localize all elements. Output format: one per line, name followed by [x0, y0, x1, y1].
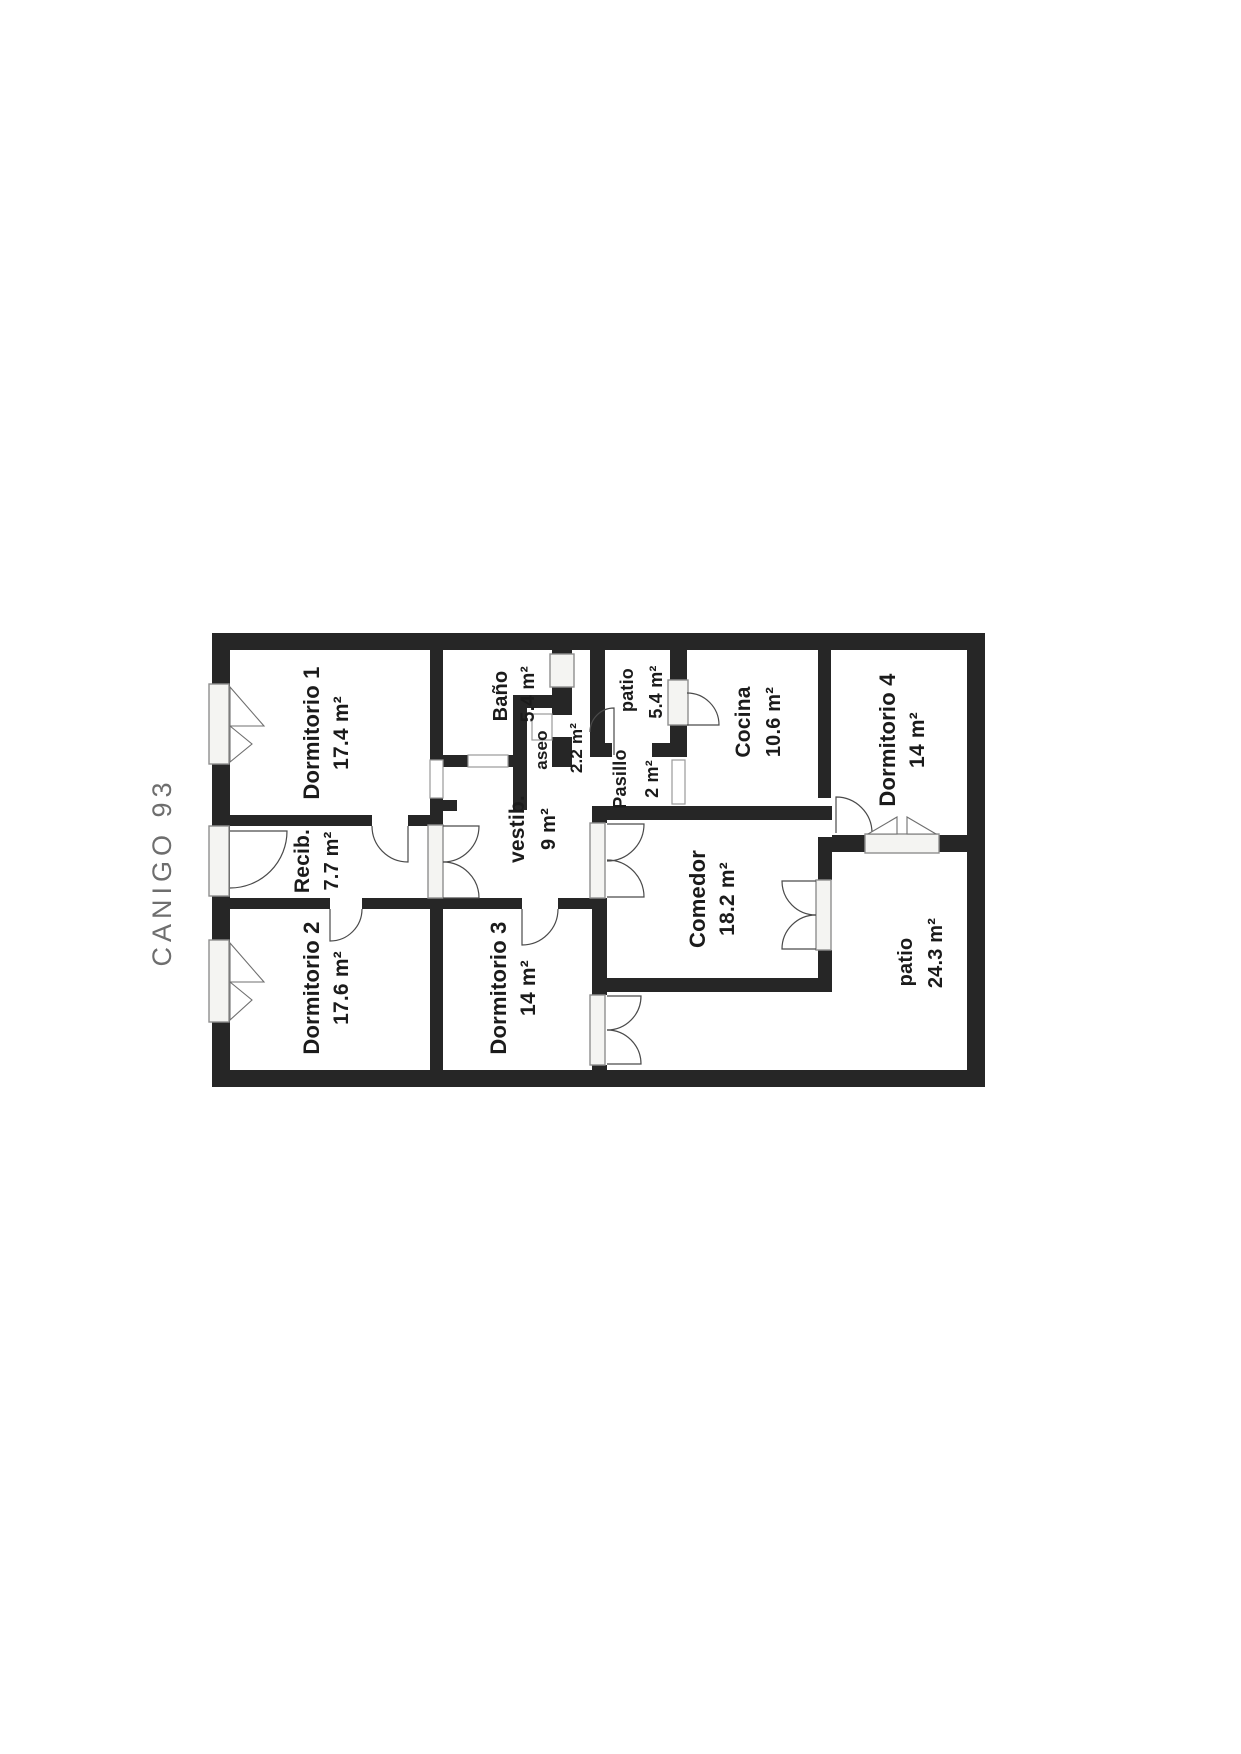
recib-vestib-door-swing-b: [443, 862, 479, 898]
entrance-door-swing: [230, 831, 287, 888]
cocina-door-swing: [687, 693, 719, 725]
vestib-comedor-door-fixture: [590, 823, 605, 898]
room-label-pasillo-area: 2 m²: [637, 659, 667, 899]
dorm1-window-swing-icon: [230, 726, 252, 762]
dorm3-patio-door-fixture: [590, 995, 605, 1065]
room-label-patio-large-area: 24.3 m²: [921, 833, 951, 1073]
comedor-patio-door-swing-a: [782, 881, 816, 915]
room-label-comedor-name: Comedor: [683, 779, 713, 1019]
recib-vestib-door-fixture: [428, 825, 443, 898]
floor-plan: Dormitorio 1 17.4 m² Recib. 7.7 m² Dormi…: [0, 0, 1241, 1754]
cocina-window: [668, 680, 688, 725]
room-label-pasillo-name: Pasillo: [605, 659, 635, 899]
dorm2-window-swing-icon: [230, 943, 264, 982]
room-label-comedor-area: 18.2 m²: [713, 779, 743, 1019]
room-label-bano-name: Baño: [486, 576, 516, 816]
entrance-door-fixture: [209, 826, 229, 896]
room-label-patio-large-name: patio: [891, 842, 921, 1082]
room-label-cocina-area: 10.6 m²: [759, 602, 789, 842]
page: Dormitorio 1 17.4 m² Recib. 7.7 m² Dormi…: [0, 0, 1241, 1754]
comedor-patio-door-fixture: [816, 880, 831, 950]
comedor-patio-door-swing-b: [782, 915, 816, 949]
dorm3-patio-door-swing-b: [607, 1030, 641, 1064]
dorm4-entry-door-swing: [836, 797, 872, 833]
dorm1-door-opening: [430, 760, 443, 798]
room-label-aseo-name: aseo: [527, 630, 557, 870]
recib-dorm1-door-swing: [372, 826, 408, 862]
room-label-dormitorio2-area: 17.6 m²: [327, 868, 357, 1108]
dorm1-window-swing-icon: [230, 687, 264, 726]
dorm2-window: [209, 940, 229, 1022]
room-label-dormitorio2-name: Dormitorio 2: [297, 868, 327, 1108]
room-label-dormitorio4-area: 14 m²: [903, 620, 933, 860]
dorm1-window: [209, 684, 229, 764]
recib-vestib-door-swing-a: [443, 826, 479, 862]
dorm2-window-swing-icon: [230, 982, 252, 1020]
room-label-aseo-area: 2.2 m²: [562, 628, 592, 868]
plan-title: CANIGO 93: [141, 702, 183, 1042]
dorm3-patio-door-swing-a: [607, 996, 641, 1030]
room-label-dormitorio4-name: Dormitorio 4: [873, 620, 903, 860]
